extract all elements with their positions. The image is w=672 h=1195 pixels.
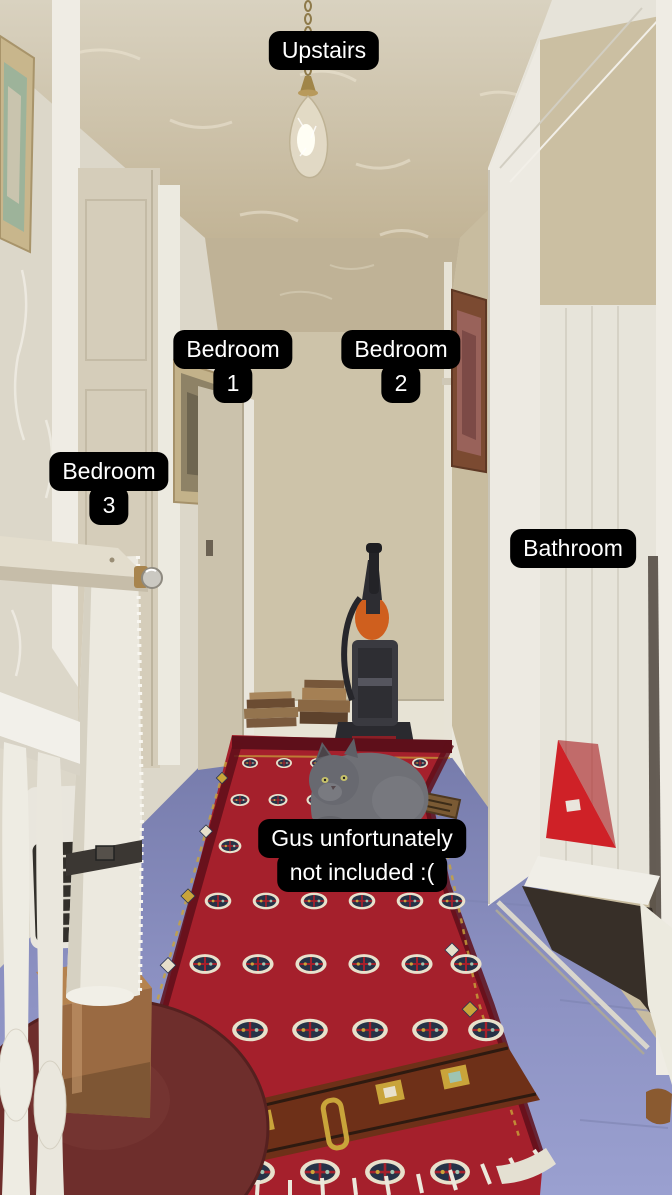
door-knob (134, 566, 162, 588)
label-text: 1 (214, 364, 253, 403)
doorway-casing-left (488, 32, 540, 906)
overlay-label-gus: Gus unfortunately not included :( (258, 819, 466, 892)
overlay-label-upstairs: Upstairs (269, 31, 379, 70)
overlay-label-bathroom: Bathroom (510, 529, 636, 568)
overlay-label-bedroom-3: Bedroom 3 (49, 452, 168, 525)
label-text: 2 (382, 364, 421, 403)
hallway-scene (0, 0, 672, 1195)
label-text: 3 (90, 486, 129, 525)
overlay-label-bedroom-1: Bedroom 1 (173, 330, 292, 403)
floor-paint-chip (646, 1088, 672, 1124)
bathroom-inner-wall (540, 14, 660, 305)
picture-frame-topleft (0, 36, 34, 252)
overlay-label-bedroom-2: Bedroom 2 (341, 330, 460, 403)
left-door-frame (52, 0, 80, 690)
label-text: Upstairs (269, 31, 379, 70)
hallway-photo: Upstairs Bedroom 1 Bedroom 2 Bedroom 3 B… (0, 0, 672, 1195)
door-latch (206, 540, 213, 556)
label-text: Bathroom (510, 529, 636, 568)
label-text: not included :( (277, 853, 447, 892)
banister-spindle (2, 742, 30, 1195)
